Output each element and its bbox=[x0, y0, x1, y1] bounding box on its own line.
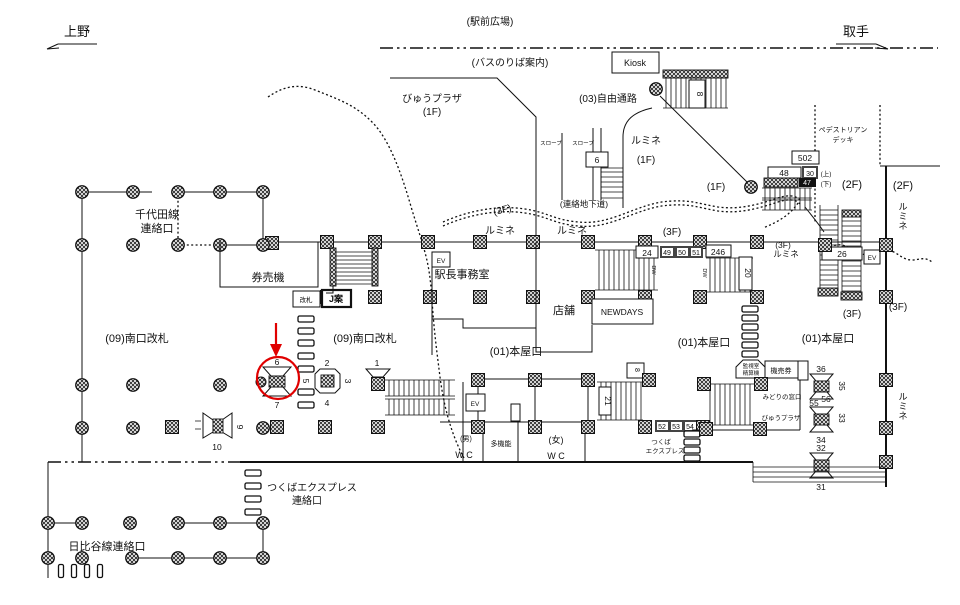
lumine-a-label: ルミネ bbox=[485, 225, 515, 237]
num-30-label: 30 bbox=[806, 171, 814, 178]
tsukuba-label-1: つくば bbox=[651, 437, 671, 446]
pillar-icon bbox=[76, 422, 89, 435]
door-box bbox=[511, 404, 520, 421]
f1-mid-label: (1F) bbox=[707, 182, 725, 193]
gate-column-honya bbox=[742, 306, 758, 357]
num-7-label: 7 bbox=[275, 400, 280, 410]
kenbaiki-label: 券売機 bbox=[252, 270, 285, 284]
down-label: (下) bbox=[821, 180, 832, 188]
hatch-strip bbox=[764, 178, 798, 187]
num-6-label: 6 bbox=[275, 357, 280, 367]
direction-ueno: 上野 bbox=[47, 24, 97, 49]
num-1-label: 1 bbox=[375, 358, 380, 368]
up-label: (上) bbox=[821, 169, 832, 178]
kenbaiki2-label: 機売券 bbox=[771, 366, 792, 375]
honya-left-label: (01)本屋口 bbox=[490, 344, 543, 358]
num-32-label: 32 bbox=[816, 443, 826, 453]
pillar-icon bbox=[214, 379, 227, 392]
num-24-label: 24 bbox=[642, 248, 652, 258]
minami-left-label: (09)南口改札 bbox=[105, 331, 169, 345]
viewplaza-label: びゅうプラザ bbox=[402, 93, 462, 105]
pillar-icon bbox=[745, 181, 758, 194]
pillar-icon bbox=[127, 379, 140, 392]
num-49-label: 49 bbox=[663, 250, 671, 257]
f3-esc-label: (3F) bbox=[843, 309, 861, 320]
pillar-icon bbox=[880, 422, 893, 435]
hibiya-label: 日比谷線連絡口 bbox=[69, 539, 146, 553]
wc-block: EV (男) W C 多機能 (女) W C bbox=[440, 374, 595, 463]
south-stairs bbox=[326, 248, 378, 293]
tsukuba-gate-column bbox=[684, 431, 700, 461]
num-9-label: 9 bbox=[235, 425, 245, 430]
num-3-label: 3 bbox=[343, 379, 353, 384]
honya-right-label: (01)本屋口 bbox=[802, 331, 855, 345]
num-35-label: 35 bbox=[837, 381, 847, 391]
stair-hatch bbox=[663, 70, 728, 78]
ekicho-label: 駅長事務室 bbox=[435, 267, 490, 281]
kiosk-label: Kiosk bbox=[624, 58, 647, 68]
pedestrian-deck-label-1: ペデストリアン bbox=[819, 125, 868, 134]
left-arrow-icon bbox=[47, 44, 97, 49]
stairs-246: 20 bbox=[706, 257, 753, 292]
floor-map-canvas: 上野 取手 (駅前広場) (バスのりば案内) Kiosk びゅうプラザ (1F)… bbox=[0, 0, 960, 605]
slope-label-1: スロープ bbox=[540, 140, 562, 147]
f3-mid-label: (3F) bbox=[663, 227, 681, 238]
toride-label: 取手 bbox=[843, 24, 869, 39]
south-gate-column bbox=[298, 316, 314, 408]
direction-toride: 取手 bbox=[836, 24, 888, 49]
dw-label: DW bbox=[650, 265, 656, 275]
jiyu-tsuro-label: (03)自由通路 bbox=[579, 92, 637, 105]
pillar-icon bbox=[271, 421, 284, 434]
elevator-label: EV bbox=[868, 255, 877, 262]
chiyoda-label-1: 千代田線 bbox=[135, 207, 179, 221]
pillar-icon bbox=[166, 421, 179, 434]
slope-label-2: スロープ bbox=[572, 140, 594, 147]
kaisatsu-label: 改札 bbox=[300, 295, 314, 304]
num-33-label: 33 bbox=[837, 413, 847, 423]
num-246-label: 246 bbox=[711, 247, 725, 257]
num-50-label: 50 bbox=[678, 250, 686, 257]
tsukuba-renraku: つくばエクスプレス 連絡口 bbox=[245, 470, 357, 515]
lumine-vertical-top: ルミネ bbox=[898, 202, 907, 231]
num-21-label: 21 bbox=[603, 396, 613, 406]
num-5-label: 5 bbox=[301, 379, 311, 384]
hatch-cap bbox=[818, 288, 838, 296]
pillar-55-56-33-34: 55 56 33 34 bbox=[809, 394, 847, 445]
stairs-8: 8 bbox=[663, 70, 728, 108]
num-8-label: 8 bbox=[695, 92, 705, 97]
speaker-pillar: 10 9 bbox=[195, 413, 245, 452]
viewplaza-floor-label: (1F) bbox=[423, 107, 441, 118]
midori-label: みどりの窓口 bbox=[763, 392, 802, 401]
takinou-label: 多機能 bbox=[491, 439, 512, 448]
chiyoda-label-2: 連絡口 bbox=[141, 221, 174, 235]
pillar-icon bbox=[880, 456, 893, 469]
lumine-b-label: ルミネ bbox=[557, 225, 587, 237]
slope-area: スロープ スロープ 6 (連絡地下道) bbox=[540, 128, 623, 209]
num-20-label: 20 bbox=[743, 268, 753, 278]
jan-label: J案 bbox=[329, 293, 344, 304]
lumine-1f-floor: (1F) bbox=[637, 155, 655, 166]
deck-stairs bbox=[762, 188, 812, 210]
ekimae-hiroba-label: (駅前広場) bbox=[467, 15, 514, 28]
pillar-icon bbox=[650, 83, 663, 96]
wc-female-wc: W C bbox=[547, 451, 565, 461]
tsukuba-label-2: エクスプレス bbox=[646, 447, 685, 455]
pillar-32-31: 32 31 bbox=[810, 443, 833, 492]
pedestrian-deck-label-2: デッキ bbox=[833, 135, 854, 144]
tenpo-label: 店舗 bbox=[553, 303, 575, 317]
num-502-label: 502 bbox=[798, 153, 812, 163]
num-52-label: 52 bbox=[658, 424, 666, 431]
tsukuba-renraku-label-2: 連絡口 bbox=[292, 494, 322, 507]
wc-female-label: (女) bbox=[549, 434, 564, 445]
highlight-arrowhead bbox=[270, 344, 282, 357]
num-51-label: 51 bbox=[692, 250, 700, 257]
lumine-vertical-bottom: ルミネ bbox=[898, 392, 907, 421]
minami-right-label: (09)南口改札 bbox=[333, 331, 397, 345]
midori-wing: 監視室 精算機 機売券 みどりの窓口 びゅうプラザ bbox=[692, 360, 808, 436]
dw-label: DW bbox=[701, 268, 707, 278]
elevator-label: EV bbox=[437, 258, 446, 265]
wc-male-wc: W C bbox=[455, 450, 473, 460]
bus-annai-label: (バスのりば案内) bbox=[472, 56, 549, 69]
pillar-icon bbox=[319, 421, 332, 434]
kanshi-label-1: 監視室 bbox=[743, 362, 760, 370]
num-26-label: 26 bbox=[837, 249, 847, 259]
lumine-corner bbox=[623, 108, 652, 137]
f2-right-label: (2F) bbox=[893, 180, 913, 192]
stairs-21: 21 8 bbox=[597, 363, 656, 434]
ueno-label: 上野 bbox=[64, 24, 90, 39]
f2-left-label: (2F) bbox=[842, 179, 862, 191]
num-2-label: 2 bbox=[325, 358, 330, 368]
chikado-label: (連絡地下道) bbox=[560, 199, 608, 209]
honya-mid-label: (01)本屋口 bbox=[678, 335, 731, 349]
hatch-cap bbox=[841, 292, 862, 300]
connector-line bbox=[660, 96, 748, 183]
f3-curve-label: (3F) bbox=[492, 203, 512, 218]
pillar-icon bbox=[880, 374, 893, 387]
pillar-icon bbox=[257, 422, 270, 435]
kanshi-label-2: 精算機 bbox=[743, 369, 760, 377]
small-box bbox=[798, 361, 808, 380]
hatch-cap bbox=[842, 210, 861, 217]
num-10-label: 10 bbox=[212, 442, 222, 452]
num-47-label: 47 bbox=[803, 180, 811, 187]
wc-male-label: (男) bbox=[460, 435, 472, 443]
wing-stairs bbox=[706, 384, 755, 425]
num-56-label: 56 bbox=[821, 394, 831, 404]
newdays-label: NEWDAYS bbox=[601, 307, 644, 317]
tsukuba-renraku-label-1: つくばエクスプレス bbox=[267, 482, 357, 494]
right-escalators: 26 EV bbox=[818, 205, 880, 300]
num-36-label: 36 bbox=[816, 364, 826, 374]
elevator-label: EV bbox=[471, 401, 480, 408]
num-31-label: 31 bbox=[816, 482, 826, 492]
viewplaza2-label: びゅうプラザ bbox=[762, 414, 801, 422]
pillar-icon bbox=[76, 379, 89, 392]
station-floor-map: 上野 取手 (駅前広場) (バスのりば案内) Kiosk びゅうプラザ (1F)… bbox=[0, 0, 960, 605]
num-4-label: 4 bbox=[325, 398, 330, 408]
pillar-icon bbox=[127, 422, 140, 435]
lumine-1f-label: ルミネ bbox=[631, 135, 661, 147]
num-6-label: 6 bbox=[595, 155, 600, 165]
num-8b-label: 8 bbox=[633, 368, 640, 372]
slope-stairs bbox=[601, 168, 623, 198]
num-48-label: 48 bbox=[779, 168, 789, 178]
num-53-label: 53 bbox=[672, 424, 680, 431]
hibiya-area: 日比谷線連絡口 bbox=[42, 462, 270, 578]
lumine-c-label: ルミネ bbox=[773, 249, 799, 259]
